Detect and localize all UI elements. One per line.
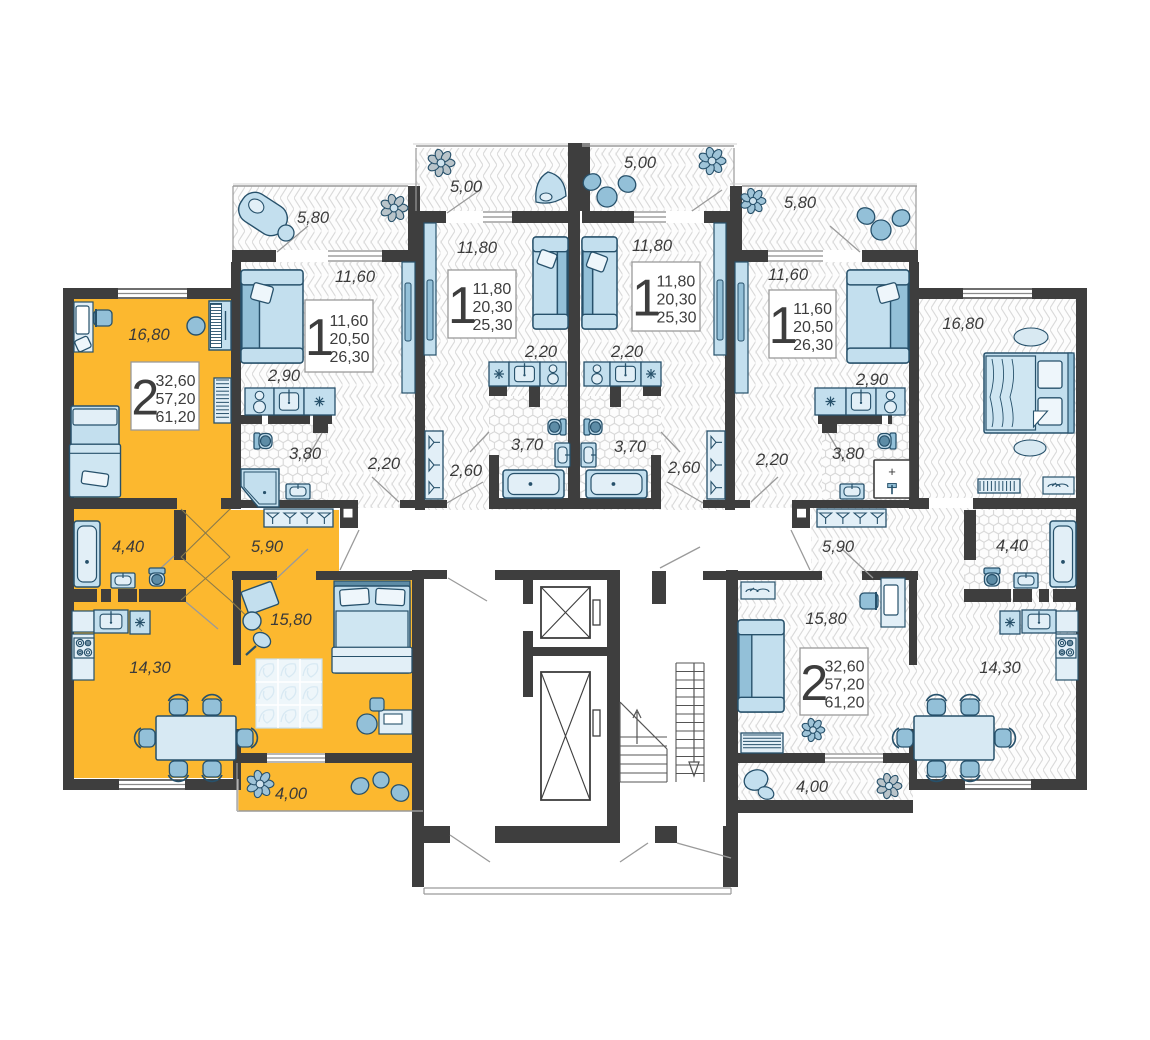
svg-text:20,50: 20,50 [329, 331, 369, 348]
svg-text:2,90: 2,90 [855, 371, 889, 389]
svg-text:14,30: 14,30 [129, 659, 171, 677]
svg-text:4,00: 4,00 [275, 785, 308, 803]
svg-text:4,40: 4,40 [996, 537, 1029, 555]
svg-text:25,30: 25,30 [656, 309, 696, 326]
svg-text:11,80: 11,80 [472, 281, 511, 298]
svg-text:32,60: 32,60 [155, 373, 195, 390]
svg-text:11,60: 11,60 [793, 301, 832, 318]
svg-text:16,80: 16,80 [942, 315, 984, 333]
svg-text:11,80: 11,80 [656, 274, 695, 291]
svg-text:2,20: 2,20 [524, 343, 558, 361]
svg-text:57,20: 57,20 [155, 391, 195, 408]
svg-text:26,30: 26,30 [793, 337, 833, 354]
svg-text:20,50: 20,50 [793, 319, 833, 336]
svg-text:57,20: 57,20 [824, 677, 864, 694]
svg-text:11,60: 11,60 [329, 313, 368, 330]
svg-text:2,20: 2,20 [755, 451, 789, 469]
svg-text:2,60: 2,60 [667, 459, 701, 477]
svg-text:5,00: 5,00 [450, 178, 483, 196]
svg-text:20,30: 20,30 [472, 299, 512, 316]
svg-text:+: + [888, 464, 896, 479]
svg-text:5,80: 5,80 [297, 209, 330, 227]
svg-text:61,20: 61,20 [824, 694, 864, 711]
svg-text:2,90: 2,90 [267, 367, 301, 385]
svg-text:15,80: 15,80 [270, 611, 312, 629]
svg-text:2,20: 2,20 [367, 455, 401, 473]
svg-text:11,80: 11,80 [457, 239, 498, 257]
svg-text:15,80: 15,80 [805, 610, 847, 628]
svg-text:25,30: 25,30 [472, 317, 512, 334]
svg-text:5,00: 5,00 [624, 154, 657, 172]
svg-text:11,60: 11,60 [768, 266, 809, 284]
svg-text:11,80: 11,80 [632, 237, 673, 255]
svg-text:5,80: 5,80 [784, 194, 817, 212]
svg-text:4,00: 4,00 [796, 778, 829, 796]
svg-text:5,90: 5,90 [251, 538, 284, 556]
svg-text:20,30: 20,30 [656, 292, 696, 309]
svg-text:11,60: 11,60 [335, 268, 376, 286]
svg-text:61,20: 61,20 [155, 409, 195, 426]
svg-text:3,80: 3,80 [289, 445, 322, 463]
svg-text:3,80: 3,80 [832, 445, 865, 463]
svg-text:2,60: 2,60 [449, 462, 483, 480]
svg-text:32,60: 32,60 [824, 659, 864, 676]
svg-text:3,70: 3,70 [614, 438, 647, 456]
svg-text:2,20: 2,20 [610, 343, 644, 361]
svg-text:4,40: 4,40 [112, 538, 145, 556]
svg-text:3,70: 3,70 [511, 436, 544, 454]
svg-text:5,90: 5,90 [822, 538, 855, 556]
svg-text:26,30: 26,30 [329, 349, 369, 366]
svg-text:16,80: 16,80 [128, 326, 170, 344]
svg-text:14,30: 14,30 [979, 659, 1021, 677]
